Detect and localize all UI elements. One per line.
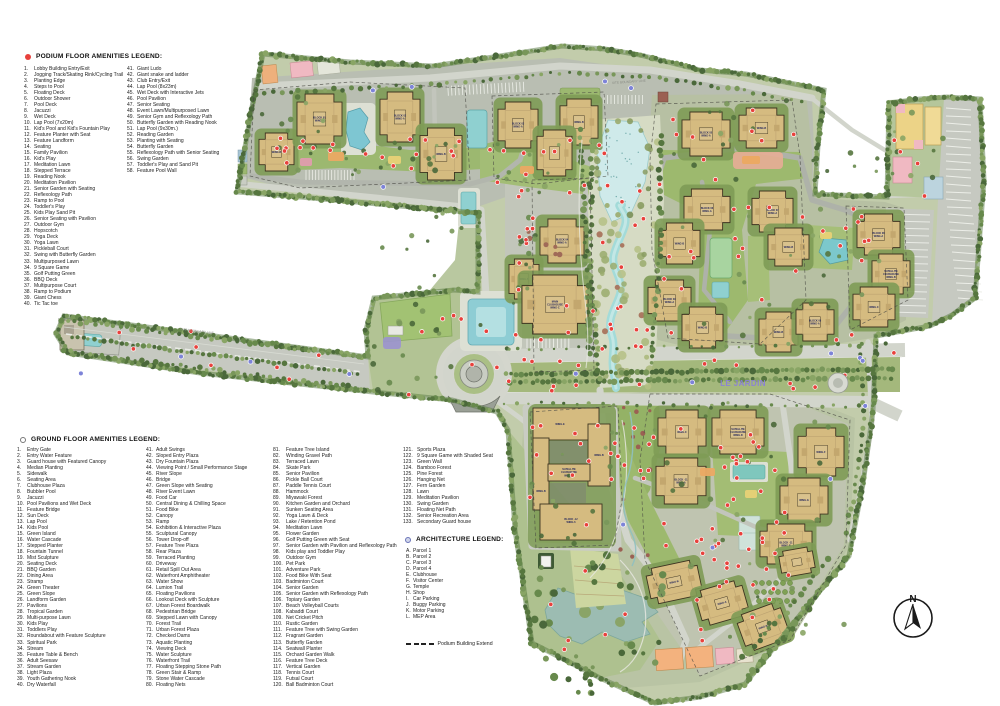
svg-text:WING-B: WING-B [757,127,767,130]
svg-text:WING-A: WING-A [513,125,523,128]
svg-text:WING-B: WING-B [594,454,604,457]
svg-text:WING-F: WING-F [816,451,826,454]
svg-text:WING-B: WING-B [886,276,896,279]
svg-text:WING-A: WING-A [701,134,711,137]
svg-text:WING-A: WING-A [557,241,567,244]
svg-text:WING-D: WING-D [733,434,743,437]
svg-text:WING-C: WING-C [869,306,879,309]
svg-text:WING-A: WING-A [395,117,405,120]
svg-text:WING-B: WING-B [574,121,584,124]
svg-text:WING-B: WING-B [436,153,446,156]
svg-text:WING-A: WING-A [768,212,778,215]
svg-text:WING-A: WING-A [665,301,675,304]
svg-text:WING-B: WING-B [675,242,685,245]
svg-text:WING-B: WING-B [784,246,794,249]
svg-text:WING-C: WING-C [550,306,560,309]
svg-text:WING-G: WING-G [799,499,809,502]
svg-text:WING-B: WING-B [774,331,784,334]
svg-text:WING-B: WING-B [272,151,282,154]
svg-text:LE JARDIN: LE JARDIN [720,379,766,388]
svg-text:WING-C: WING-C [677,431,687,434]
svg-text:WING-A: WING-A [874,235,884,238]
svg-text:WING-A: WING-A [810,322,820,325]
svg-text:WING-B: WING-B [698,326,708,329]
svg-text:WING-A: WING-A [702,210,712,213]
svg-text:N: N [909,594,916,605]
svg-text:WING-E: WING-E [555,423,565,426]
svg-text:WING-6: WING-6 [566,521,576,524]
svg-text:WING-B: WING-B [536,490,546,493]
